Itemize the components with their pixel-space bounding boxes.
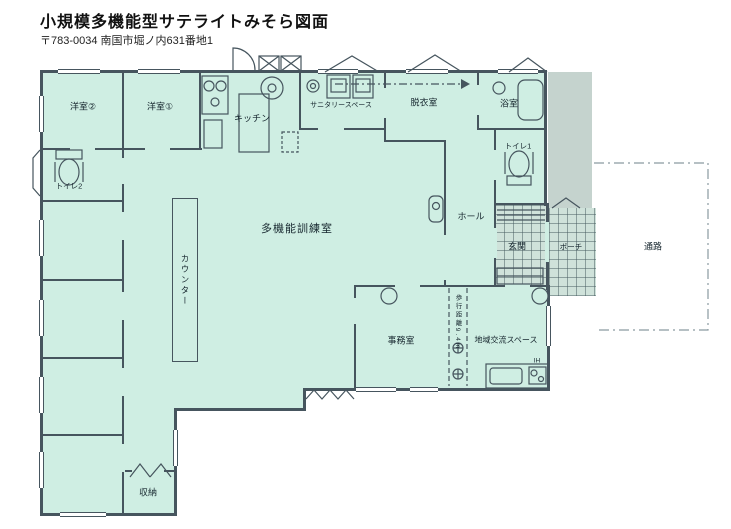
room-yoshitsu6 (42, 435, 123, 513)
label-yoshitsu1: 洋室① (147, 100, 173, 113)
label-storage: 収納 (139, 486, 157, 499)
label-office: 事務室 (387, 334, 414, 347)
label-genkan: 玄関 (508, 240, 526, 253)
wall (122, 72, 124, 150)
room-toilet2 (42, 150, 123, 202)
window-icon (58, 69, 100, 74)
window-icon (39, 452, 44, 488)
window-icon (39, 96, 44, 132)
wall (40, 434, 124, 436)
label-bath: 浴室 (500, 97, 518, 110)
door-opening (318, 127, 344, 131)
entrance-door-arc-icon (233, 48, 255, 71)
door-opening (493, 150, 497, 180)
label-hall: ホール (457, 210, 484, 223)
door-opening (121, 212, 125, 240)
window-icon (318, 69, 358, 74)
door-opening (493, 228, 497, 258)
door-opening (383, 88, 387, 118)
wall (40, 148, 202, 150)
door-opening (70, 147, 95, 151)
wall (40, 200, 124, 202)
door-opening (121, 444, 125, 472)
door-opening (145, 147, 170, 151)
wall (199, 72, 201, 150)
room-yoshitsu3 (42, 202, 123, 280)
label-toilet1: トイレ1 (505, 141, 532, 152)
window-icon (546, 306, 551, 346)
counter-label: カウンター (179, 254, 191, 307)
room-training-upper (300, 128, 445, 150)
label-porch: ポーチ (560, 242, 583, 253)
door-opening (476, 85, 480, 115)
wall (494, 203, 547, 205)
vent-panel-icon (259, 56, 301, 71)
label-kitchen: キッチン (234, 112, 270, 125)
window-icon (410, 387, 438, 392)
wall (384, 140, 446, 142)
counter: カウンター (172, 198, 198, 362)
label-training: 多機能訓練室 (261, 220, 333, 236)
label-ih: IH (534, 358, 541, 365)
label-passage: 通路 (644, 240, 662, 253)
wall (303, 388, 306, 411)
window-icon (173, 430, 178, 466)
area-veranda (548, 72, 592, 208)
label-sanitary: サニタリースペース (310, 100, 372, 110)
floor-plan-page: 小規模多機能型サテライトみそら図面 〒783-0034 南国市堀ノ内631番地1 (0, 0, 731, 529)
window-icon (138, 69, 180, 74)
wall (40, 70, 43, 516)
label-dressing: 脱衣室 (410, 96, 437, 109)
label-toilet2: トイレ2 (56, 181, 83, 192)
wall (40, 70, 547, 73)
door-opening (505, 284, 530, 288)
wall (477, 128, 547, 130)
door-opening (121, 368, 125, 396)
label-walking-distance: 歩行距離9.4m (452, 294, 462, 350)
window-icon (356, 387, 396, 392)
bay-window-icon (33, 150, 40, 196)
wall (544, 70, 547, 206)
door-opening (353, 298, 357, 324)
door-opening (545, 222, 549, 262)
wall (40, 279, 124, 281)
wall (40, 357, 124, 359)
window-icon (60, 512, 106, 517)
room-hall (445, 130, 495, 287)
door-opening (395, 284, 420, 288)
page-title: 小規模多機能型サテライトみそら図面 (40, 8, 329, 32)
wall (174, 408, 306, 411)
label-yoshitsu2: 洋室② (70, 100, 96, 113)
window-icon (498, 69, 538, 74)
page-address: 〒783-0034 南国市堀ノ内631番地1 (40, 32, 213, 48)
wall (299, 72, 301, 130)
window-icon (39, 220, 44, 256)
room-training-step (123, 390, 305, 410)
window-icon (39, 377, 44, 413)
door-opening (443, 235, 447, 280)
wall (164, 470, 176, 472)
window-icon (39, 300, 44, 336)
room-yoshitsu4 (42, 280, 123, 358)
label-community: 地域交流スペース (474, 335, 537, 346)
room-yoshitsu5 (42, 358, 123, 435)
window-icon (406, 69, 448, 74)
door-opening (121, 292, 125, 320)
door-opening (121, 158, 125, 184)
